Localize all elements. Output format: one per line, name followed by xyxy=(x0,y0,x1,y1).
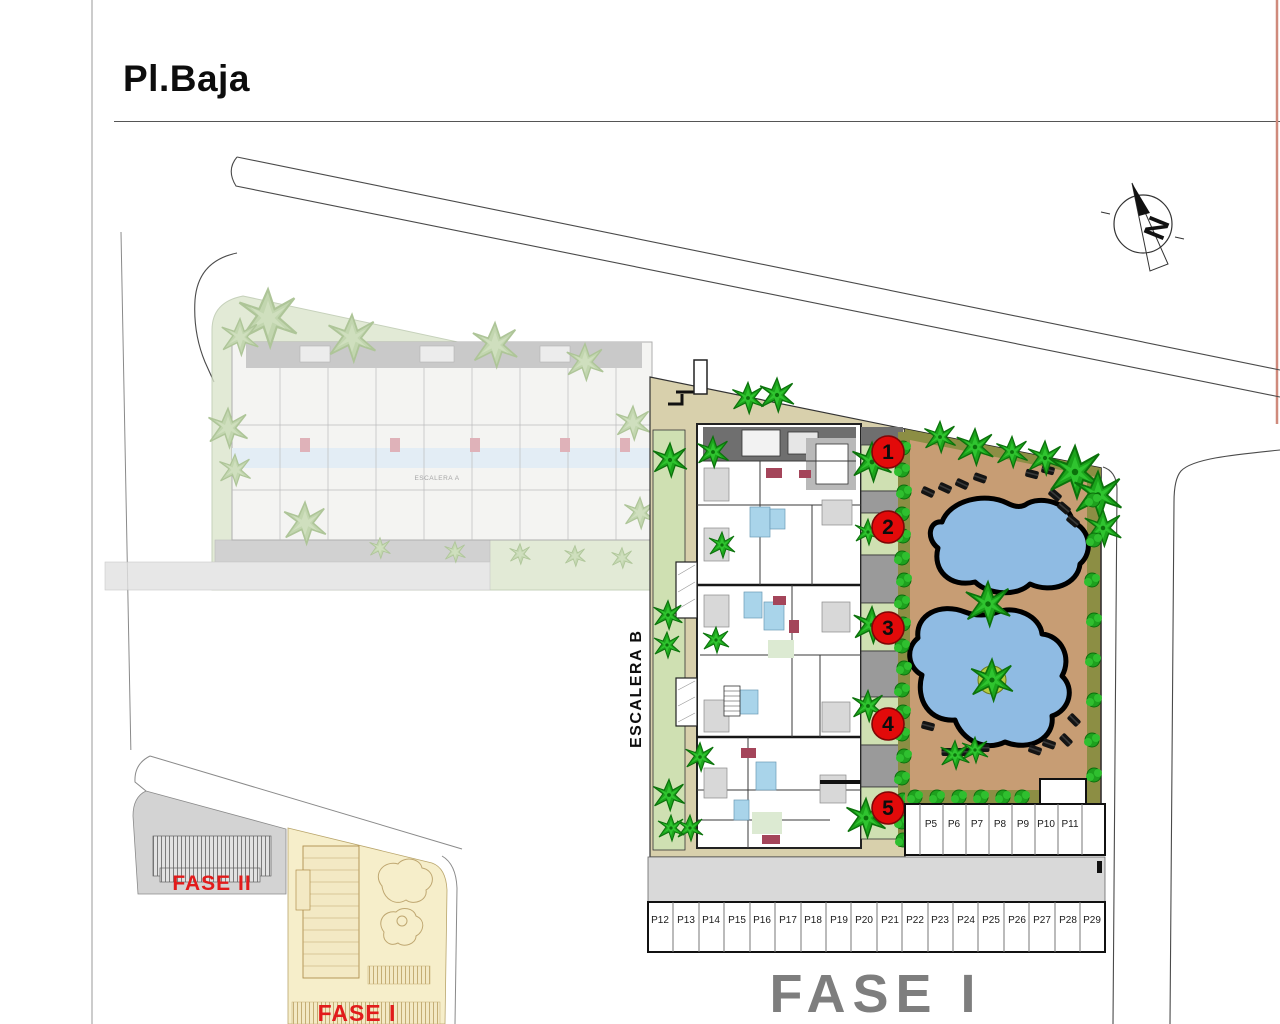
escalera-a-label: ESCALERA A xyxy=(414,475,459,482)
parking-spot: P22 xyxy=(906,915,924,926)
unit-2-label: 2 xyxy=(882,516,894,539)
escalera-b-label: ESCALERA B xyxy=(628,630,645,748)
parking-spot: P19 xyxy=(830,915,848,926)
parking-spot: P6 xyxy=(948,819,961,830)
parking-spot: P25 xyxy=(982,915,1000,926)
parking-spot: P20 xyxy=(855,915,873,926)
parking-spot: P10 xyxy=(1037,819,1055,830)
inset-fase1-label: FASE I xyxy=(318,1000,397,1024)
entry-notch xyxy=(694,360,707,394)
unit-3-label: 3 xyxy=(882,617,894,640)
inset-fase2-label: FASE II xyxy=(172,872,251,895)
parking-spot: P13 xyxy=(677,915,695,926)
parking-spot: P18 xyxy=(804,915,822,926)
parking-spot: P27 xyxy=(1033,915,1051,926)
parking-spot: P7 xyxy=(971,819,984,830)
parking-row-upper: P5 P6 P7 P8 P9 P10 P11 xyxy=(905,804,1105,855)
parking-spot: P9 xyxy=(1017,819,1030,830)
parking-spot: P8 xyxy=(994,819,1007,830)
parking-spot: P12 xyxy=(651,915,669,926)
north-letter: N xyxy=(1136,211,1175,243)
parking-spot: P23 xyxy=(931,915,949,926)
parking-spot: P24 xyxy=(957,915,975,926)
drive-aisle xyxy=(648,857,1105,902)
unit-1-label: 1 xyxy=(882,441,894,464)
parking-spot: P15 xyxy=(728,915,746,926)
site-plan-drawing: ESCALERA A xyxy=(0,0,1280,1024)
parking-row-lower: P12 P13 P14 P15 P16 P17 P18 P19 P20 P21 … xyxy=(648,902,1105,952)
fase2-parcel: ESCALERA A xyxy=(105,289,668,590)
pool-house xyxy=(1040,779,1086,806)
parking-spot: P11 xyxy=(1061,819,1078,830)
parking-spot: P29 xyxy=(1083,915,1101,926)
phase-title: FASE I xyxy=(769,964,982,1024)
site-plan-page: Pl.Baja xyxy=(0,0,1280,1024)
fase1-parcel: 1 2 3 4 5 ESCALERA B xyxy=(628,360,1121,1024)
phase-key-inset: FASE II FASE I xyxy=(128,750,462,1024)
parking-spot: P17 xyxy=(779,915,797,926)
parking-spot: P14 xyxy=(702,915,720,926)
unit-4-label: 4 xyxy=(882,713,894,736)
parking-spot: P21 xyxy=(881,915,899,926)
north-arrow: N xyxy=(1101,183,1184,271)
parking-spot: P28 xyxy=(1059,915,1077,926)
unit-5-label: 5 xyxy=(882,797,894,820)
parking-spot: P26 xyxy=(1008,915,1026,926)
parking-spot: P16 xyxy=(753,915,771,926)
parking-spot: P5 xyxy=(925,819,938,830)
